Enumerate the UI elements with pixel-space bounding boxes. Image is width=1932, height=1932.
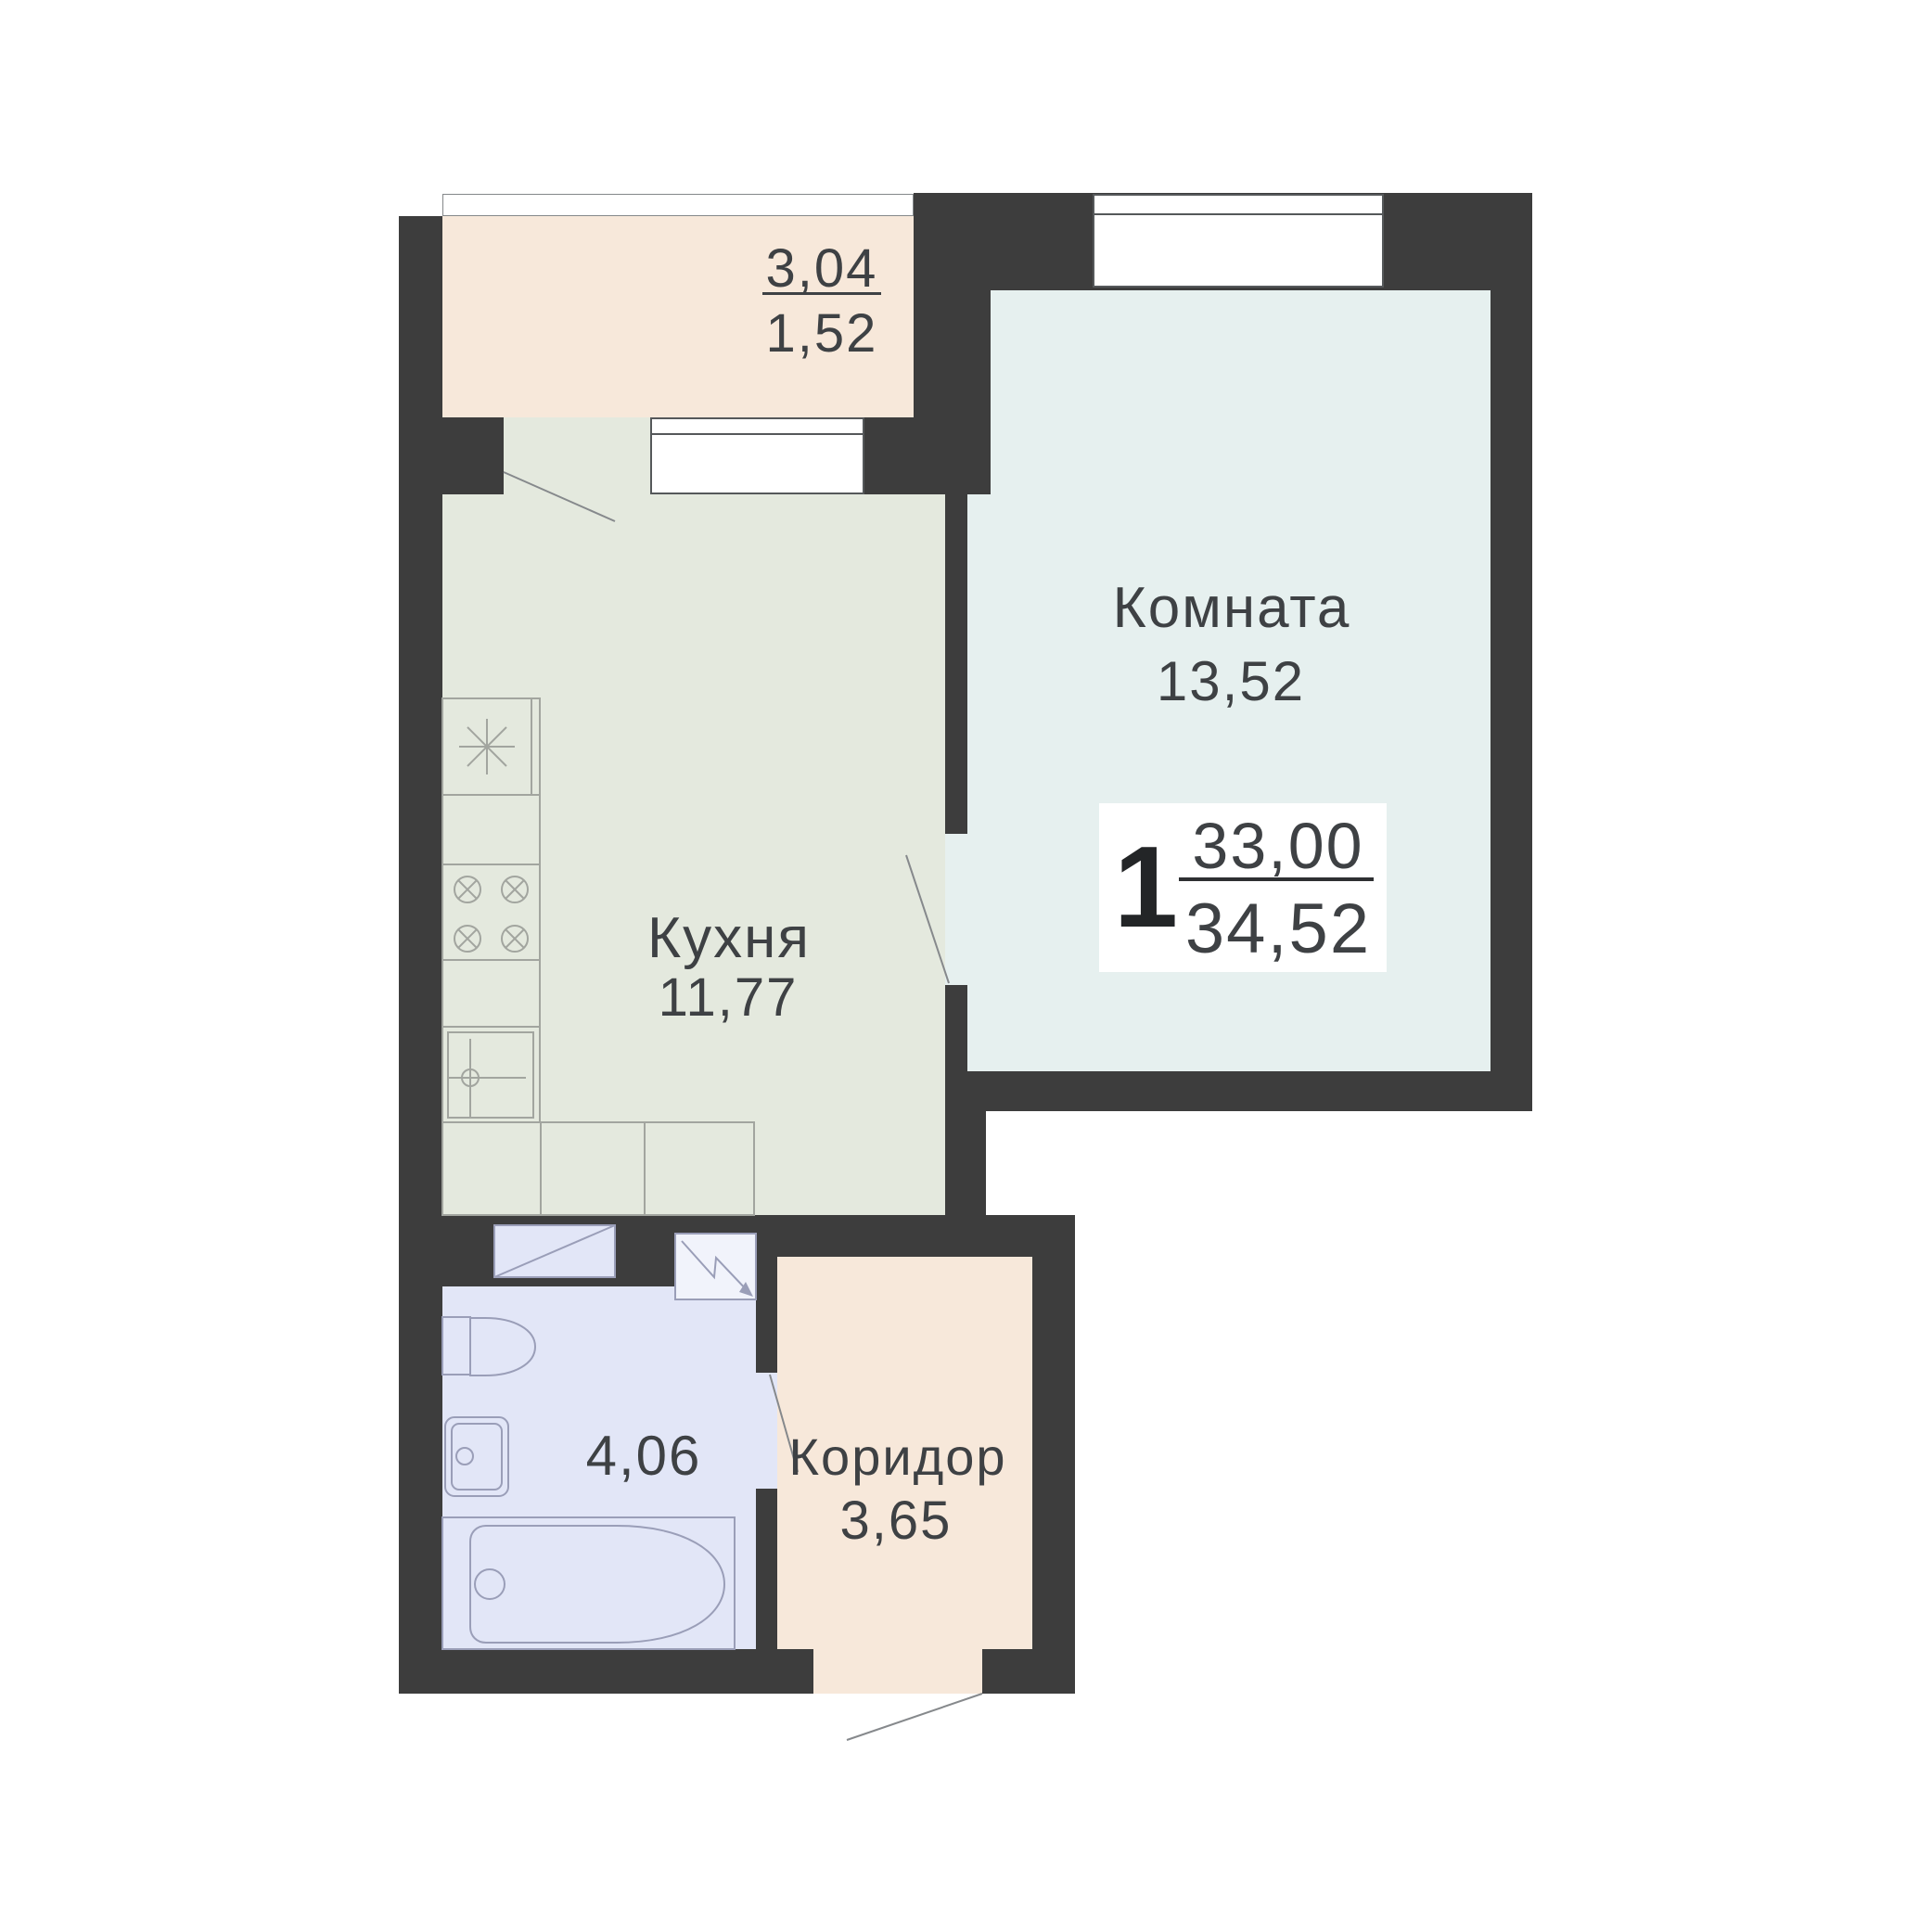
living-area: 33,00 bbox=[1173, 809, 1383, 883]
wall-corridor-right bbox=[1032, 1215, 1075, 1651]
wall-kitchen-room-lower bbox=[945, 985, 967, 1071]
room-name: Комната bbox=[1113, 580, 1351, 637]
wall-bottom-right bbox=[982, 1649, 1075, 1694]
rooms-count: 1 bbox=[1114, 830, 1178, 945]
wall-bathroom-right-lower bbox=[756, 1489, 777, 1649]
room-window-mullion bbox=[1094, 213, 1383, 215]
entrance-door-swing bbox=[847, 1694, 982, 1740]
apartment-summary-box: 1 33,00 34,52 bbox=[1099, 803, 1387, 972]
kitchen-floor bbox=[442, 417, 945, 1215]
corridor-area: 3,65 bbox=[840, 1494, 953, 1548]
balcony-glazing bbox=[442, 194, 914, 216]
corridor-name: Коридор bbox=[788, 1431, 1006, 1483]
floor-plan: 3,04 1,52 Комната 13,52 Кухня 11,77 4,06… bbox=[0, 0, 1932, 1932]
wall-left bbox=[399, 216, 442, 1694]
wall-kitchen-window-right bbox=[864, 417, 914, 494]
wall-kitchen-room-upper bbox=[945, 494, 967, 834]
wall-balcony-door-stub bbox=[442, 417, 504, 494]
wall-corridor-top bbox=[756, 1215, 1032, 1257]
wall-right bbox=[1491, 290, 1532, 1111]
kitchen-window-mullion bbox=[651, 433, 864, 435]
wall-balcony-right-pier bbox=[914, 193, 991, 494]
room-area: 13,52 bbox=[1157, 654, 1305, 710]
kitchen-window bbox=[650, 417, 864, 494]
room-window bbox=[1093, 194, 1384, 288]
bathroom-area: 4,06 bbox=[586, 1428, 702, 1484]
balcony-area-lower: 1,52 bbox=[766, 307, 878, 361]
wall-kitchen-right-connector bbox=[945, 1111, 986, 1215]
kitchen-area: 11,77 bbox=[659, 971, 799, 1025]
total-area: 34,52 bbox=[1173, 889, 1383, 969]
kitchen-name: Кухня bbox=[647, 910, 811, 967]
balcony-area-divider bbox=[762, 292, 881, 295]
summary-divider bbox=[1179, 877, 1374, 881]
balcony-area-upper: 3,04 bbox=[766, 242, 878, 296]
wall-bathroom-right-upper bbox=[756, 1257, 777, 1373]
wall-room-bottom bbox=[945, 1071, 1532, 1111]
wall-bottom-left bbox=[399, 1649, 813, 1694]
wall-bathroom-top bbox=[442, 1215, 774, 1286]
